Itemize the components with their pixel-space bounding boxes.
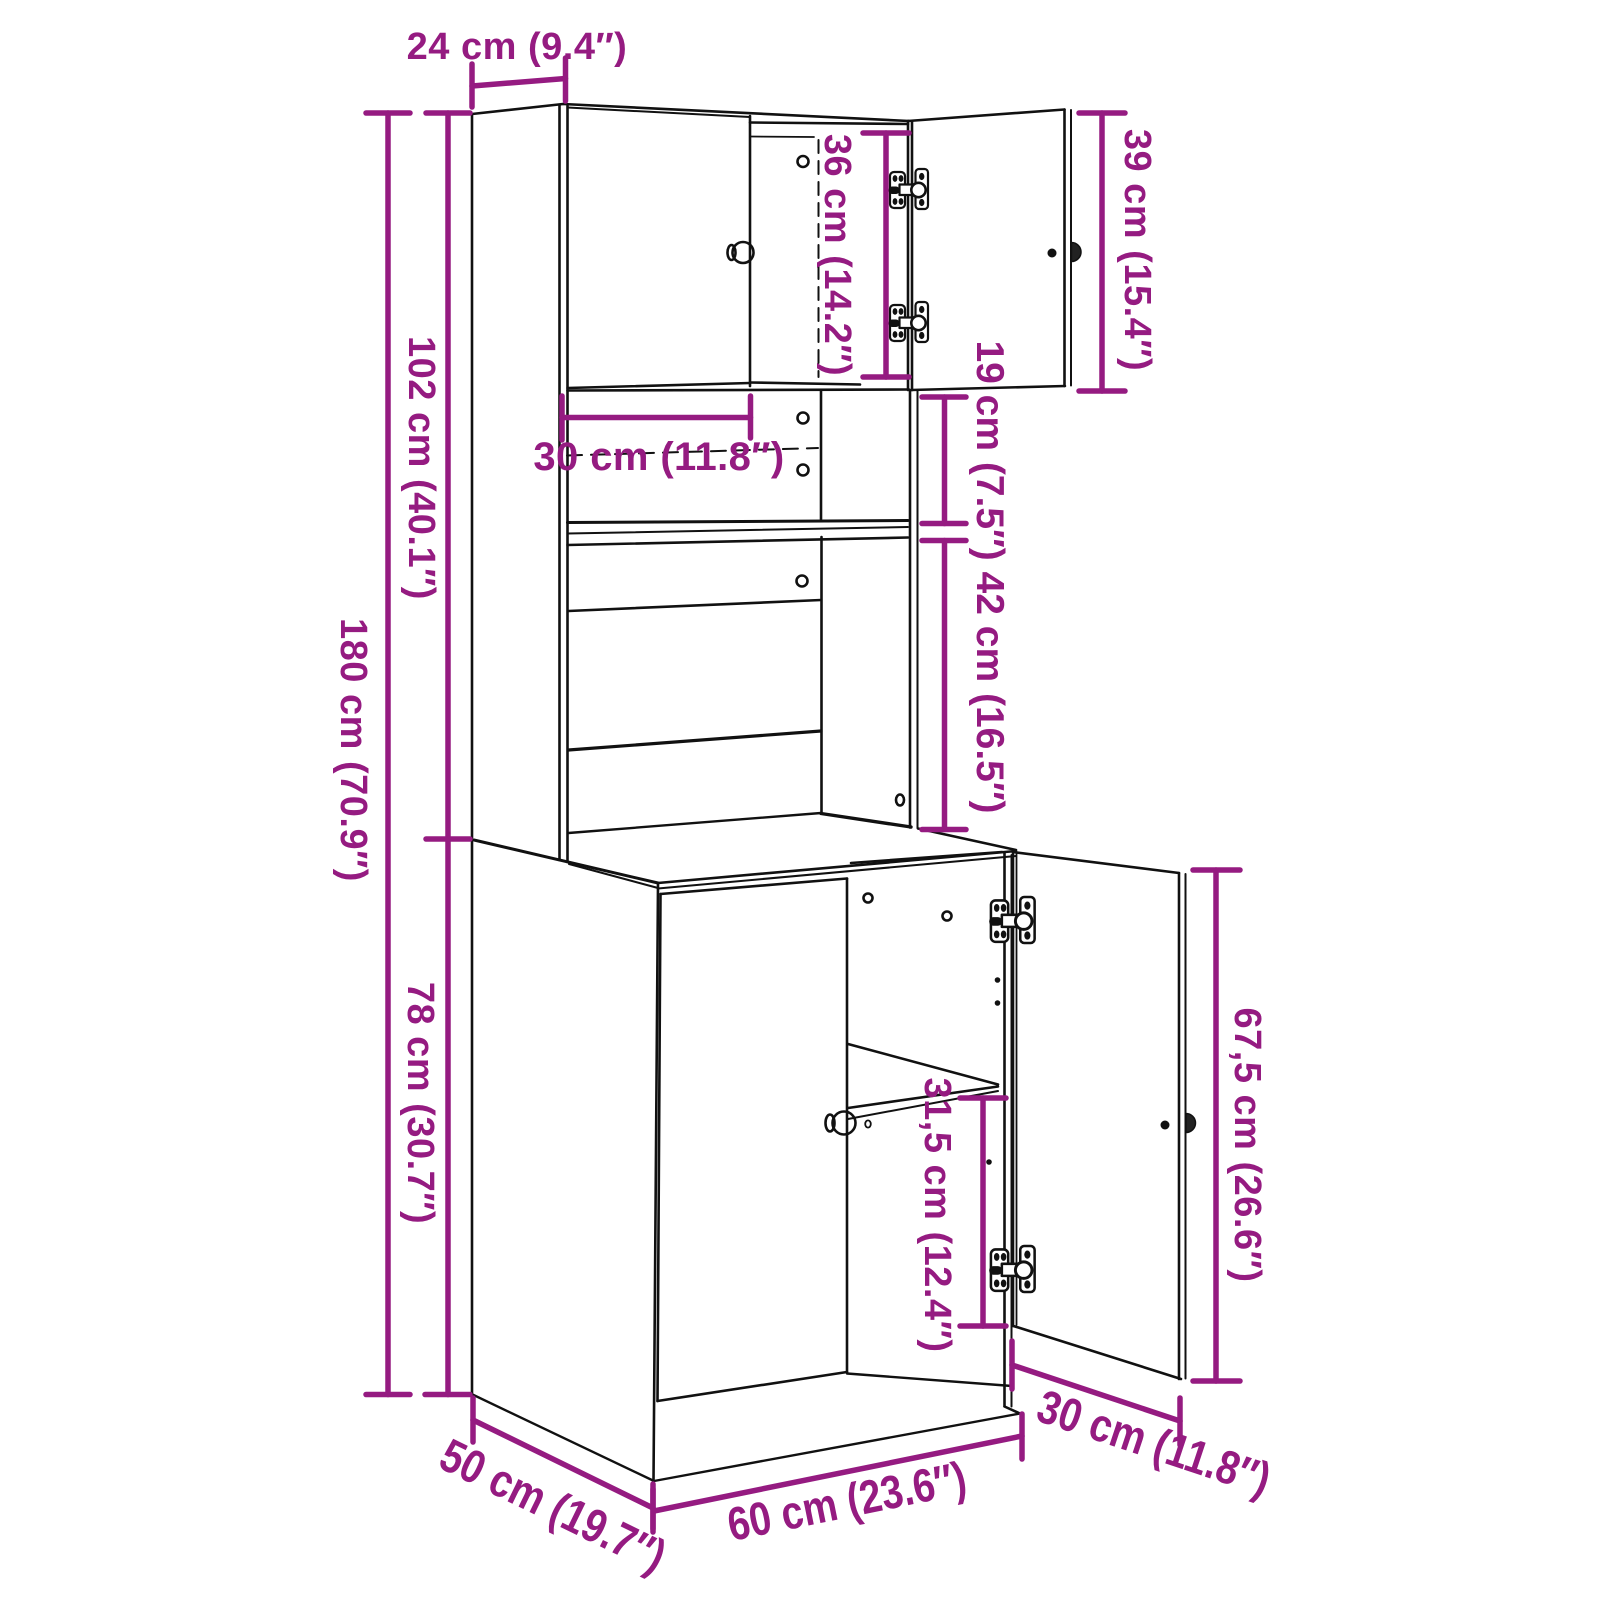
svg-text:30 cm (11.8″): 30 cm (11.8″) bbox=[533, 435, 784, 479]
svg-text:67,5 cm (26.6″): 67,5 cm (26.6″) bbox=[1226, 1008, 1268, 1283]
svg-text:19 cm (7.5″) 42 cm (16.5″): 19 cm (7.5″) 42 cm (16.5″) bbox=[968, 340, 1011, 813]
svg-text:39 cm (15.4″): 39 cm (15.4″) bbox=[1116, 129, 1158, 371]
svg-text:78 cm (30.7″): 78 cm (30.7″) bbox=[399, 982, 441, 1224]
svg-text:180 cm (70.9″): 180 cm (70.9″) bbox=[332, 618, 374, 882]
svg-text:31,5 cm (12.4″): 31,5 cm (12.4″) bbox=[916, 1078, 958, 1353]
svg-text:36 cm (14.2″): 36 cm (14.2″) bbox=[816, 134, 858, 376]
svg-text:102 cm (40.1″): 102 cm (40.1″) bbox=[400, 336, 442, 600]
svg-text:24 cm (9.4″): 24 cm (9.4″) bbox=[407, 26, 628, 68]
